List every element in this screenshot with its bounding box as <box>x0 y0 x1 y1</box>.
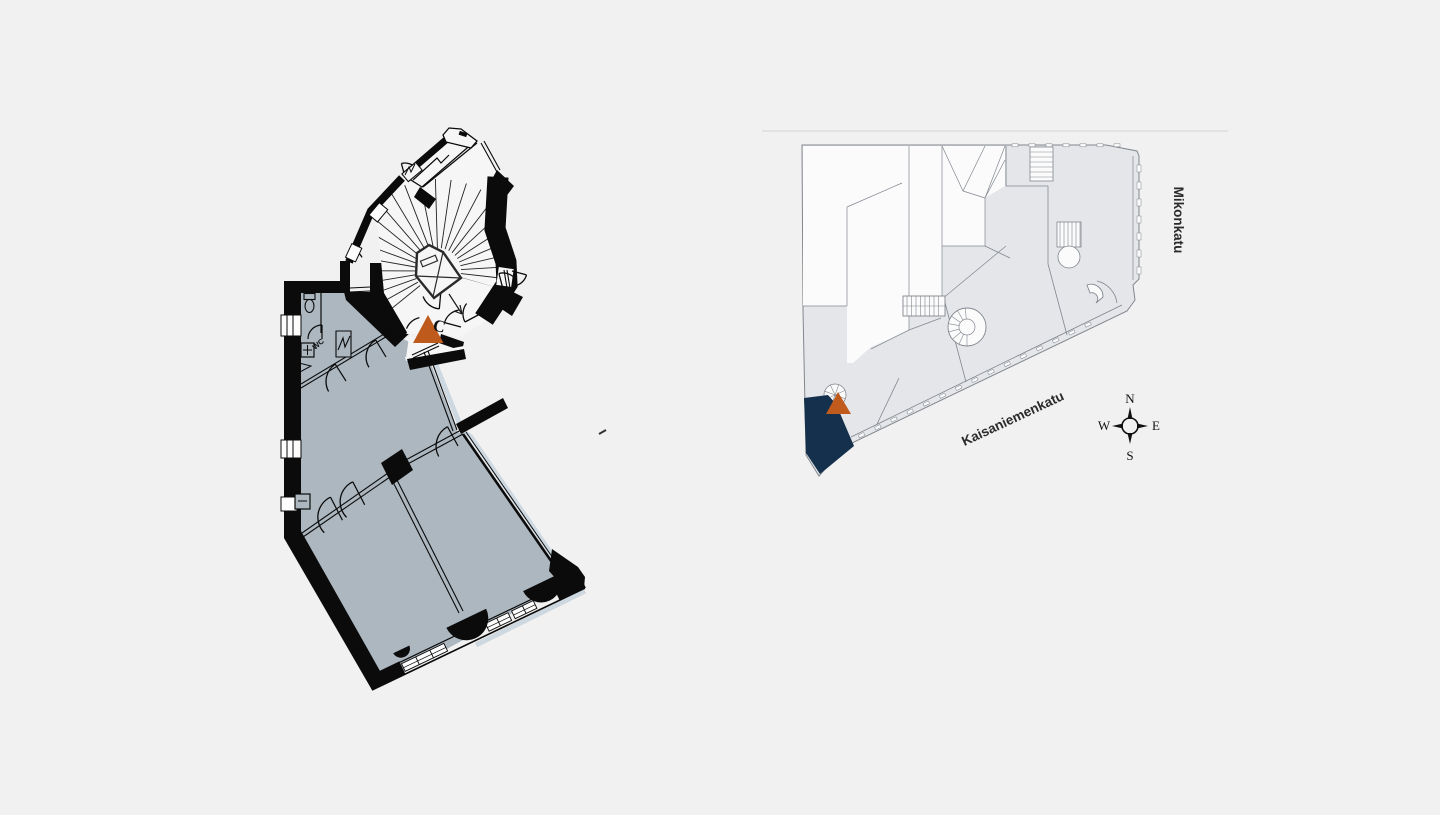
svg-text:Mikonkatu: Mikonkatu <box>1171 187 1186 254</box>
svg-text:S: S <box>1126 448 1133 463</box>
svg-text:Kaisaniemenkatu: Kaisaniemenkatu <box>959 388 1066 449</box>
svg-text:N: N <box>1125 391 1135 406</box>
svg-text:W: W <box>1098 418 1111 433</box>
svg-text:E: E <box>1152 418 1160 433</box>
